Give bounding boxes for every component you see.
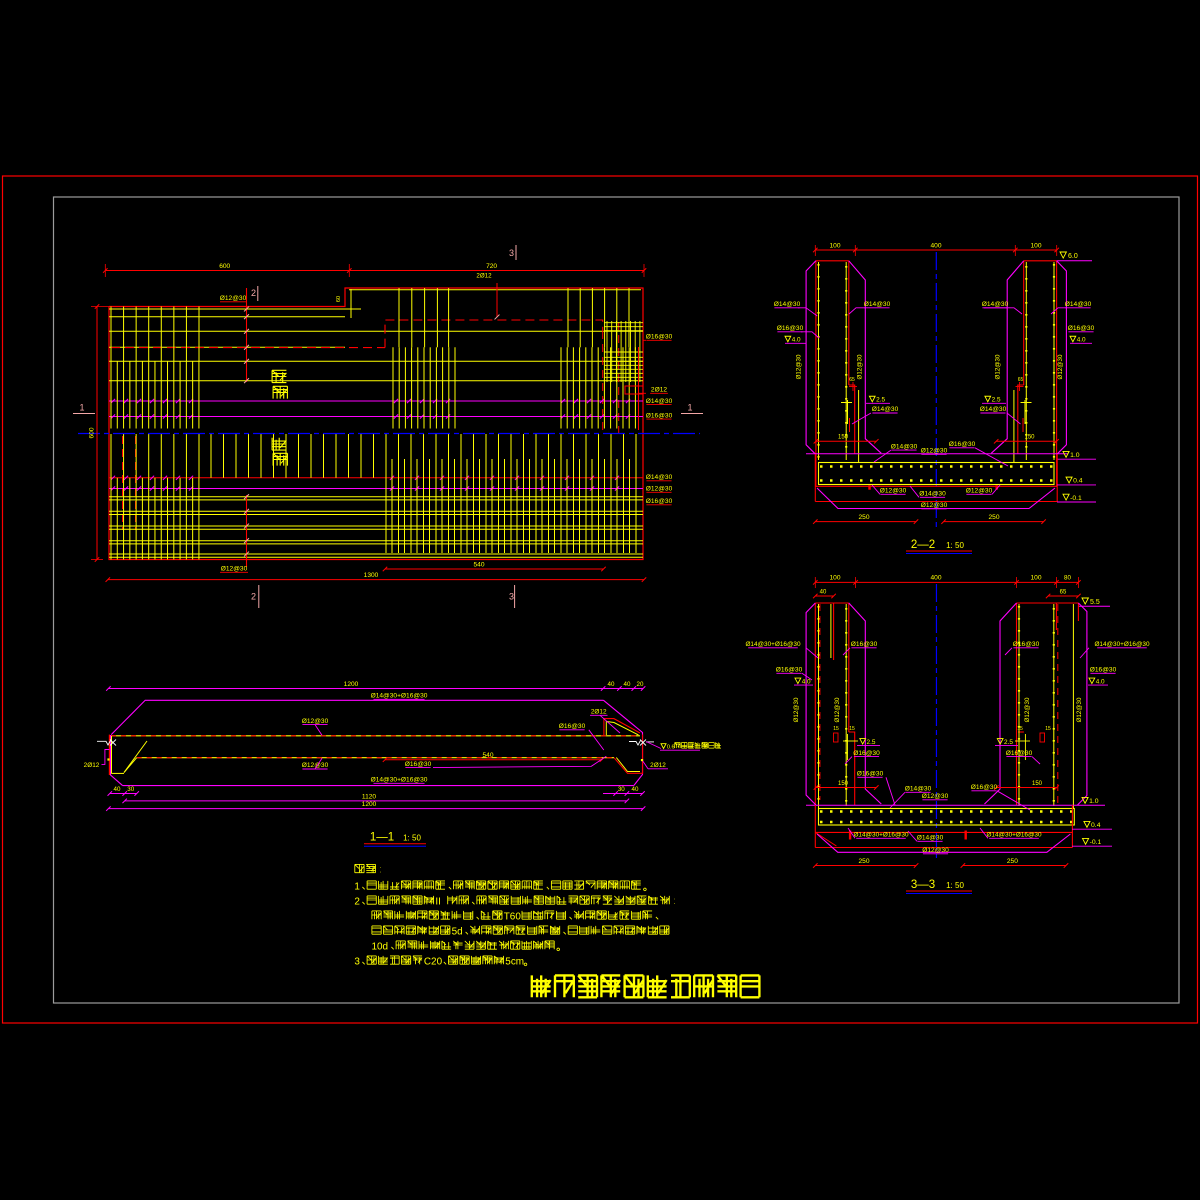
svg-text:2: 2	[251, 592, 256, 602]
svg-text:Ø16@30: Ø16@30	[1068, 325, 1095, 332]
svg-text:30: 30	[618, 786, 625, 793]
svg-text:C20: C20	[424, 957, 443, 968]
svg-text:2.5: 2.5	[876, 397, 885, 404]
svg-text:540: 540	[473, 561, 484, 568]
svg-text:2—2: 2—2	[911, 539, 935, 551]
svg-text:Ø16@30: Ø16@30	[777, 325, 804, 332]
svg-text:Ø16@30: Ø16@30	[646, 334, 673, 341]
svg-text:Ø12@30: Ø12@30	[221, 566, 248, 573]
svg-text:600: 600	[89, 427, 96, 438]
svg-text:Ø12@30: Ø12@30	[922, 847, 949, 854]
svg-text:150: 150	[838, 435, 849, 441]
svg-text:250: 250	[988, 514, 999, 521]
svg-text:250: 250	[1007, 858, 1018, 865]
svg-text:2.5: 2.5	[992, 397, 1001, 404]
svg-text:Ø16@30: Ø16@30	[776, 667, 803, 674]
svg-text:5cm: 5cm	[505, 957, 524, 968]
svg-text:15: 15	[1017, 726, 1023, 732]
svg-text:40: 40	[608, 681, 615, 688]
svg-text:Ø14@30+Ø16@30: Ø14@30+Ø16@30	[986, 832, 1042, 839]
svg-text:40: 40	[624, 681, 631, 688]
svg-text:4.0: 4.0	[1077, 337, 1086, 344]
svg-text:3: 3	[509, 248, 514, 258]
svg-text:Ø12@30: Ø12@30	[922, 793, 949, 800]
svg-text:Ø16@30: Ø16@30	[851, 641, 878, 648]
svg-text:20: 20	[637, 681, 644, 688]
svg-text:4.0: 4.0	[792, 337, 801, 344]
svg-text:60: 60	[336, 296, 342, 302]
svg-text:-0.1: -0.1	[1090, 839, 1102, 846]
svg-text:T60: T60	[504, 912, 522, 923]
svg-text:Ø14@30: Ø14@30	[872, 406, 899, 413]
svg-text:65: 65	[1018, 377, 1024, 383]
svg-text:Ø16@30: Ø16@30	[1013, 641, 1040, 648]
svg-text:2Ø12: 2Ø12	[591, 709, 607, 716]
svg-text:Ø12@30: Ø12@30	[220, 295, 247, 302]
svg-text:-0.1: -0.1	[1070, 495, 1082, 502]
svg-text:1300: 1300	[364, 572, 379, 579]
svg-text:3: 3	[354, 957, 360, 968]
svg-text:6.0: 6.0	[1068, 253, 1078, 260]
svg-text:1: 50: 1: 50	[403, 834, 421, 843]
svg-text:1: 50: 1: 50	[946, 541, 964, 550]
svg-text:15: 15	[833, 726, 839, 732]
svg-text:2: 2	[354, 897, 360, 908]
svg-text:Ø14@30: Ø14@30	[980, 406, 1007, 413]
svg-text:15: 15	[849, 726, 855, 732]
svg-text:250: 250	[858, 514, 869, 521]
svg-text:400: 400	[930, 575, 941, 582]
svg-text:Ø12@30: Ø12@30	[880, 488, 907, 495]
svg-text:Ø12@30: Ø12@30	[921, 502, 948, 509]
svg-text:40: 40	[114, 786, 121, 793]
svg-text:2.5: 2.5	[1004, 739, 1013, 746]
svg-text:Ø12@30: Ø12@30	[856, 354, 863, 379]
svg-text:1200: 1200	[344, 681, 359, 688]
svg-text:Ø14@30+Ø16@30: Ø14@30+Ø16@30	[1094, 641, 1150, 648]
svg-text:Ø14@30+Ø16@30: Ø14@30+Ø16@30	[371, 777, 428, 784]
svg-text:2: 2	[251, 288, 256, 298]
svg-text:Ø16@30: Ø16@30	[853, 750, 880, 757]
svg-text:5d: 5d	[452, 927, 463, 938]
svg-text:1.0: 1.0	[1070, 452, 1080, 459]
svg-text:1200: 1200	[362, 801, 377, 808]
svg-text:Ø14@30: Ø14@30	[646, 398, 673, 405]
svg-text:Ø12@30: Ø12@30	[921, 448, 948, 455]
svg-text:40: 40	[820, 589, 827, 595]
svg-text:2Ø12: 2Ø12	[84, 762, 100, 769]
svg-text:Ø14@30: Ø14@30	[919, 491, 946, 498]
svg-text:Ø16@30: Ø16@30	[1090, 667, 1117, 674]
svg-text:150: 150	[1032, 781, 1043, 787]
svg-text:4.0: 4.0	[802, 678, 811, 685]
svg-text:30: 30	[127, 786, 134, 793]
svg-text:Ø12@30: Ø12@30	[302, 718, 329, 725]
svg-text:65: 65	[849, 377, 855, 383]
svg-text:Ø16@30: Ø16@30	[971, 784, 998, 791]
svg-text:540: 540	[482, 752, 493, 759]
svg-text:Ø14@30: Ø14@30	[1065, 301, 1092, 308]
svg-text:Ø12@30: Ø12@30	[1024, 697, 1031, 722]
svg-text:Ø16@30: Ø16@30	[646, 412, 673, 419]
svg-text:5.5: 5.5	[1090, 599, 1100, 606]
svg-text:65: 65	[1060, 589, 1067, 595]
svg-text:Ø14@30: Ø14@30	[646, 474, 673, 481]
svg-text:1—1: 1—1	[370, 832, 394, 844]
svg-text:II: II	[435, 897, 441, 908]
svg-text:3: 3	[509, 592, 514, 602]
svg-text:100: 100	[1030, 575, 1041, 582]
svg-text:80: 80	[1064, 575, 1071, 582]
svg-text:Ø14@30+Ø16@30: Ø14@30+Ø16@30	[745, 641, 801, 648]
svg-text:Ø14@30: Ø14@30	[982, 301, 1009, 308]
svg-text:2Ø12: 2Ø12	[651, 387, 667, 394]
svg-text:Ø14@30: Ø14@30	[864, 301, 891, 308]
svg-text:250: 250	[858, 858, 869, 865]
svg-text:0.4: 0.4	[1091, 822, 1101, 829]
svg-text:Ø12@30: Ø12@30	[796, 354, 803, 379]
svg-text:Ø12@30: Ø12@30	[646, 486, 673, 493]
svg-text:Ø14@30+Ø16@30: Ø14@30+Ø16@30	[853, 832, 909, 839]
svg-text:400: 400	[930, 242, 941, 249]
svg-text:0.4: 0.4	[1073, 478, 1083, 485]
svg-text:Ø16@30: Ø16@30	[857, 771, 884, 778]
svg-text:15: 15	[1045, 726, 1051, 732]
svg-text:1120: 1120	[362, 794, 377, 801]
svg-text:Ø12@30: Ø12@30	[1057, 354, 1064, 379]
svg-text:Ø16@30: Ø16@30	[559, 723, 586, 730]
svg-text:1: 1	[79, 403, 84, 413]
svg-text:3—3: 3—3	[911, 879, 935, 891]
svg-text:1.0: 1.0	[1089, 798, 1099, 805]
svg-text:2Ø12: 2Ø12	[650, 762, 666, 769]
svg-text:Ø12@30: Ø12@30	[793, 697, 800, 722]
svg-text:Ø14@30: Ø14@30	[917, 835, 944, 842]
svg-text:720: 720	[486, 263, 497, 270]
svg-text:150: 150	[1024, 435, 1035, 441]
svg-text:1: 50: 1: 50	[946, 881, 964, 890]
svg-text:Ø14@30: Ø14@30	[891, 443, 918, 450]
svg-text:Ø12@30: Ø12@30	[1076, 697, 1083, 722]
svg-text:Ø12@30: Ø12@30	[966, 488, 993, 495]
svg-text:Ø16@30: Ø16@30	[949, 441, 976, 448]
svg-text:40: 40	[632, 786, 639, 793]
svg-text:Ø12@30: Ø12@30	[994, 354, 1001, 379]
svg-text:100: 100	[829, 575, 840, 582]
svg-text:Ø16@30: Ø16@30	[405, 761, 432, 768]
svg-text:2.5: 2.5	[867, 739, 876, 746]
svg-text:Ø14@30: Ø14@30	[774, 301, 801, 308]
svg-text:150: 150	[838, 781, 849, 787]
svg-text:2Ø12: 2Ø12	[476, 273, 492, 280]
svg-text:Ø12@30: Ø12@30	[834, 697, 841, 722]
svg-text:1: 1	[354, 882, 360, 893]
svg-text:Ø14@30+Ø16@30: Ø14@30+Ø16@30	[371, 693, 428, 700]
svg-text:0.6: 0.6	[667, 744, 675, 750]
svg-text:100: 100	[1030, 242, 1041, 249]
svg-text:Ø16@30: Ø16@30	[646, 498, 673, 505]
svg-text:1: 1	[687, 403, 692, 413]
svg-text:Ø14@30: Ø14@30	[905, 786, 932, 793]
svg-text:100: 100	[829, 242, 840, 249]
svg-text:Ø16@30: Ø16@30	[1006, 750, 1033, 757]
svg-text:10d: 10d	[372, 942, 389, 953]
svg-text:600: 600	[219, 263, 230, 270]
svg-text:4.0: 4.0	[1096, 678, 1105, 685]
